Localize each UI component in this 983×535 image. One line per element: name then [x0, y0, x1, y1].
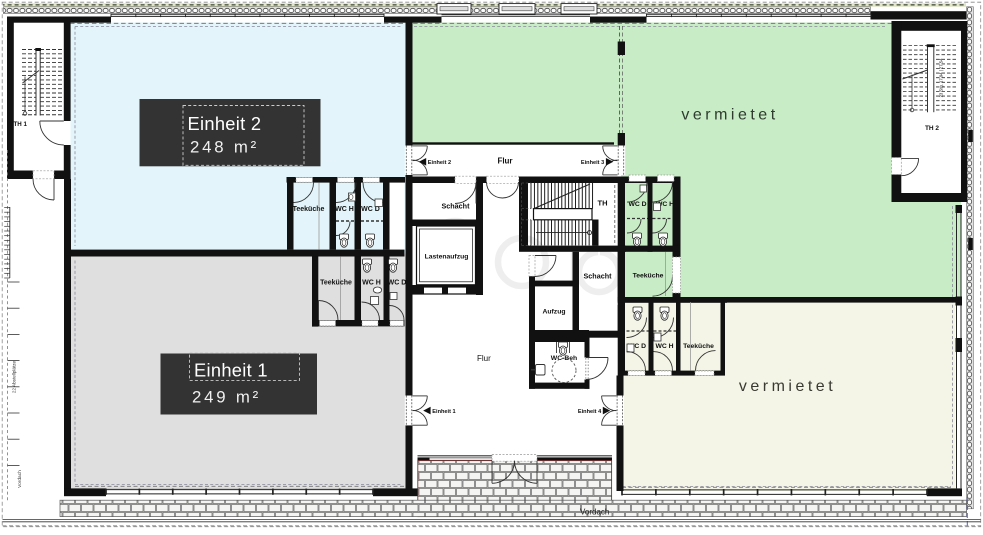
svg-text:Teeküche: Teeküche: [683, 343, 714, 350]
svg-text:Flur: Flur: [477, 354, 491, 363]
svg-text:Einheit 2: Einheit 2: [428, 160, 451, 166]
svg-text:Vordach: Vordach: [580, 508, 609, 517]
svg-text:Teeküche: Teeküche: [293, 206, 325, 213]
svg-text:TH: TH: [598, 199, 608, 208]
svg-text:Teeküche: Teeküche: [320, 280, 352, 287]
svg-text:vermietet: vermietet: [739, 378, 836, 395]
svg-text:WC D: WC D: [388, 280, 407, 287]
svg-text:Schacht: Schacht: [442, 202, 471, 211]
svg-text:Einheit 4: Einheit 4: [578, 409, 602, 415]
svg-text:22 Abstellplätze: 22 Abstellplätze: [12, 360, 17, 393]
svg-text:248 m²: 248 m²: [190, 138, 259, 157]
svg-text:TH 2: TH 2: [925, 125, 939, 132]
svg-text:Flur: Flur: [497, 157, 512, 166]
svg-text:TH 1: TH 1: [14, 121, 28, 128]
svg-text:Aufzug: Aufzug: [542, 309, 565, 316]
svg-text:Schacht: Schacht: [584, 272, 613, 281]
svg-text:vermietet: vermietet: [681, 107, 778, 124]
svg-text:WC H: WC H: [655, 343, 673, 350]
svg-text:Teeküche: Teeküche: [633, 273, 664, 280]
svg-text:Einheit 1: Einheit 1: [432, 409, 455, 415]
svg-text:WC D: WC D: [361, 206, 380, 213]
svg-text:WC H: WC H: [335, 206, 354, 213]
svg-text:Einheit 3: Einheit 3: [581, 160, 604, 166]
svg-text:WC H: WC H: [362, 280, 381, 287]
svg-text:Einheit 2: Einheit 2: [188, 113, 262, 134]
svg-text:Einheit 1: Einheit 1: [194, 360, 268, 381]
svg-text:Lastenaufzug: Lastenaufzug: [425, 254, 469, 261]
svg-text:Vordach: Vordach: [17, 470, 23, 488]
svg-text:249 m²: 249 m²: [192, 388, 261, 407]
svg-text:23 Stg. 17,94 | 27,54: 23 Stg. 17,94 | 27,54: [939, 58, 944, 97]
